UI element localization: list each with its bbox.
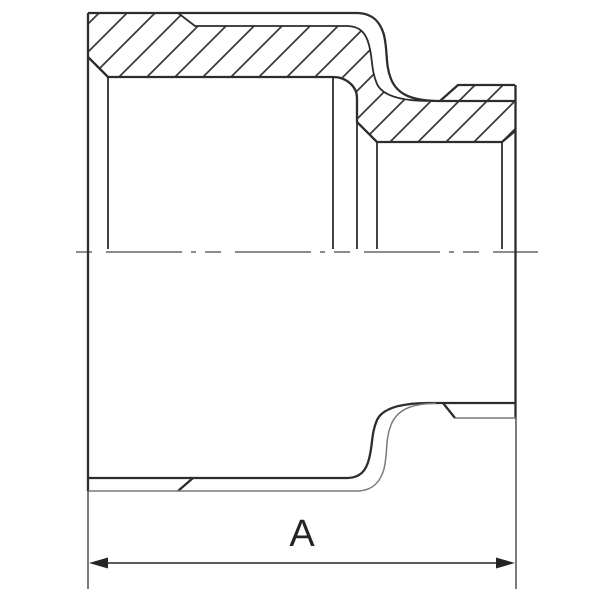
technical-drawing-page: A [0, 0, 600, 600]
external-view-bottom [88, 403, 516, 491]
dimension-arrowhead-right [496, 558, 515, 569]
bore-profile [88, 57, 515, 249]
dimension: A [88, 418, 516, 589]
fitting-section-drawing: A [0, 0, 600, 600]
dimension-label: A [289, 513, 315, 555]
dimension-arrowhead-left [89, 558, 108, 569]
